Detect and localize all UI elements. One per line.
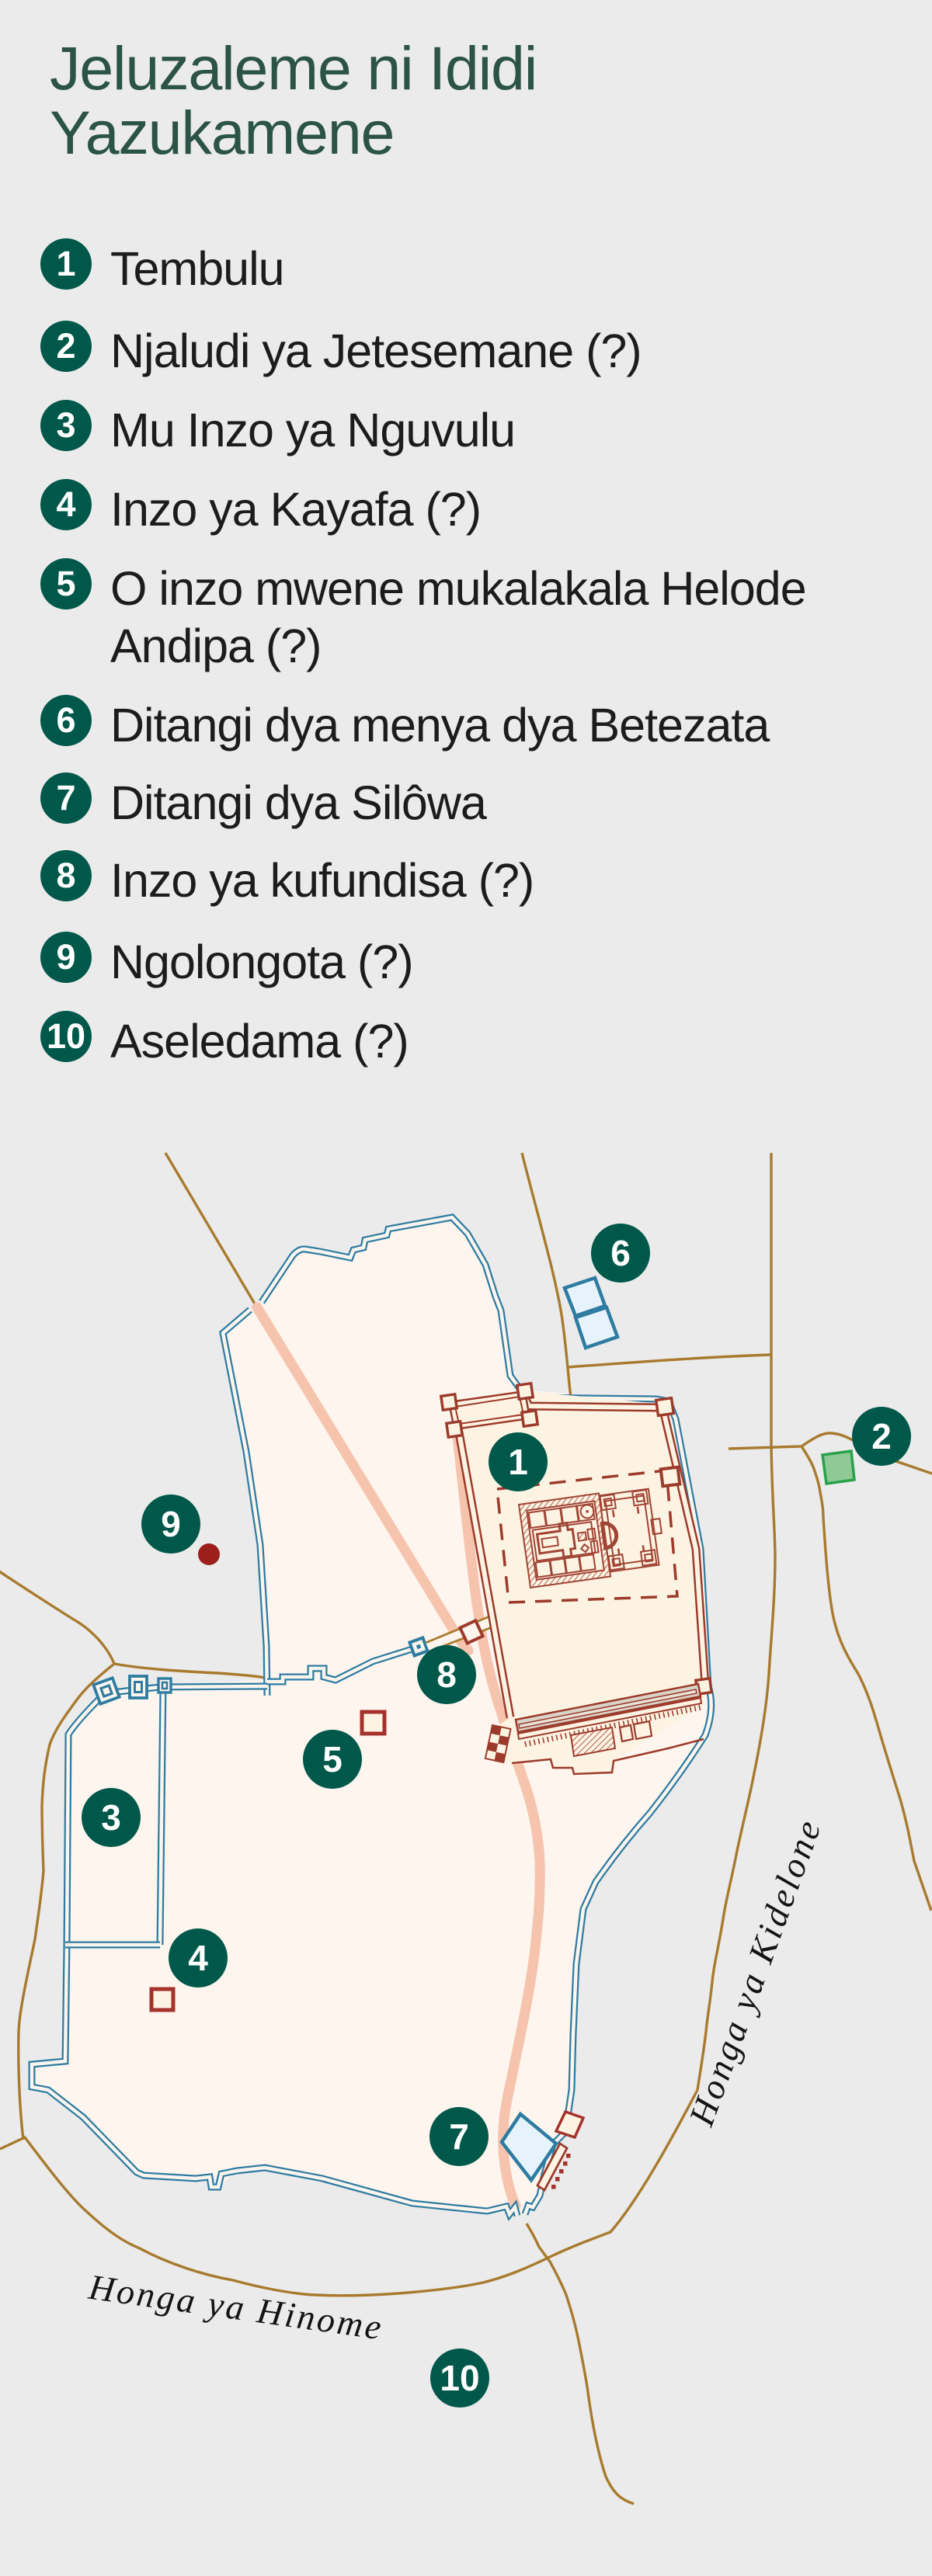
- svg-text:2: 2: [871, 1416, 892, 1456]
- svg-text:7: 7: [449, 2116, 469, 2157]
- svg-text:Honga ya Kidelone: Honga ya Kidelone: [681, 1813, 829, 2131]
- svg-text:8: 8: [436, 1654, 457, 1695]
- svg-text:Honga ya Hinome: Honga ya Hinome: [85, 2267, 386, 2348]
- svg-text:3: 3: [101, 1797, 121, 1838]
- svg-text:9: 9: [161, 1504, 181, 1544]
- svg-text:4: 4: [188, 1938, 208, 1978]
- svg-text:1: 1: [508, 1442, 528, 1482]
- svg-text:5: 5: [322, 1739, 343, 1779]
- svg-text:6: 6: [610, 1233, 631, 1273]
- svg-text:10: 10: [440, 2358, 479, 2398]
